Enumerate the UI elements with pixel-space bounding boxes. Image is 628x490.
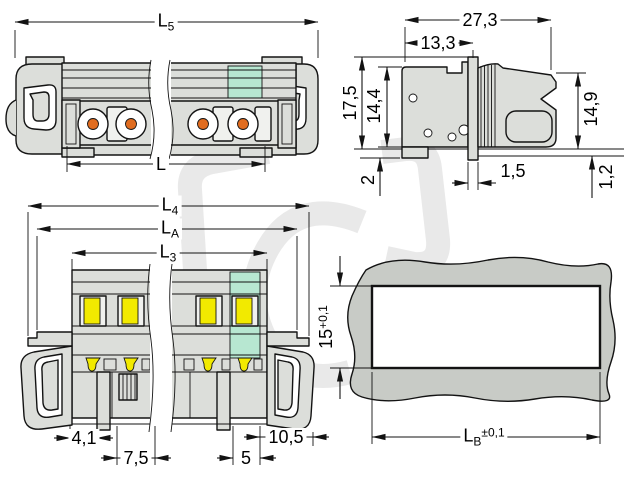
- side-flange: [468, 57, 478, 160]
- hatched-peg: [119, 374, 137, 400]
- front-right-foot: [240, 148, 272, 157]
- mounting-peg: [97, 372, 110, 430]
- dim-label-4-1: 4,1: [68, 429, 99, 447]
- dim-label-1-5: 1,5: [497, 162, 528, 180]
- dim-label-lb: LB±0,1: [460, 427, 507, 448]
- left-latch-finger: [30, 92, 49, 121]
- panel-cutout-rect: [372, 286, 600, 368]
- mounting-peg: [217, 372, 230, 430]
- side-cutout: [506, 111, 552, 142]
- technical-drawing-canvas: L5 L 27,3 13,3 17,5 14,4 14,9 2 1,5 1,2 …: [0, 0, 628, 490]
- right-ledge: [267, 332, 309, 346]
- dim-label-14-4: 14,4: [365, 87, 383, 124]
- coding-highlight-front: [228, 66, 262, 98]
- dim-label-l: L: [153, 155, 169, 173]
- dim-label-7-5: 7,5: [120, 449, 151, 467]
- dim-1-5: [452, 162, 496, 190]
- front-view-drawing: [6, 22, 318, 172]
- left-ledge: [28, 332, 72, 346]
- dim-label-2: 2: [359, 174, 377, 186]
- dim-label-l4: L4: [159, 196, 182, 217]
- right-wing-finger: [278, 360, 293, 410]
- left-wing-finger: [42, 360, 58, 410]
- dim-label-10-5: 10,5: [265, 428, 306, 446]
- left-latch-bump: [6, 100, 16, 136]
- side-hole: [424, 129, 432, 137]
- dim-label-27-3: 27,3: [459, 11, 500, 29]
- dim-label-13-3: 13,3: [417, 34, 458, 52]
- side-hole: [409, 94, 417, 102]
- side-left-block: [402, 62, 468, 147]
- dim-label-1-2: 1,2: [597, 163, 615, 190]
- dim-label-l5: L5: [155, 12, 178, 33]
- dim-label-l3: L3: [157, 243, 180, 264]
- break-gap: [150, 262, 172, 434]
- dim-label-17-5: 17,5: [341, 84, 359, 121]
- panel-cutout-drawing: [330, 256, 615, 444]
- right-clamp: [278, 100, 296, 148]
- dim-label-15: 15+0,1: [317, 304, 335, 350]
- side-hole: [448, 133, 456, 141]
- dim-label-14-9: 14,9: [582, 90, 600, 127]
- dim-label-5: 5: [238, 449, 254, 467]
- dim-label-la: LA: [158, 219, 182, 240]
- side-foot: [402, 147, 428, 158]
